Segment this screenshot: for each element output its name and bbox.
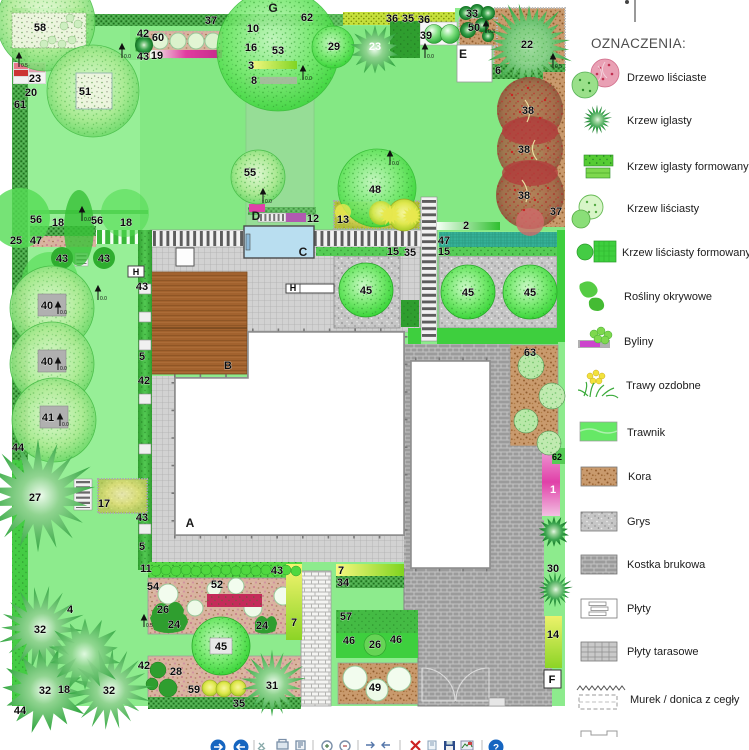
svg-text:4: 4 bbox=[67, 604, 74, 616]
svg-text:25: 25 bbox=[10, 235, 22, 247]
svg-text:Byliny: Byliny bbox=[624, 336, 654, 348]
svg-text:37: 37 bbox=[205, 15, 217, 27]
svg-text:45: 45 bbox=[215, 641, 227, 653]
svg-text:15: 15 bbox=[438, 246, 450, 258]
svg-text:6: 6 bbox=[495, 65, 501, 77]
svg-text:OZNACZENIA:: OZNACZENIA: bbox=[591, 36, 686, 51]
svg-text:E: E bbox=[459, 47, 467, 61]
svg-text:45: 45 bbox=[360, 285, 372, 297]
svg-text:43: 43 bbox=[136, 281, 148, 293]
svg-text:Płyty: Płyty bbox=[627, 603, 651, 615]
svg-text:H: H bbox=[290, 283, 297, 293]
svg-text:47: 47 bbox=[30, 235, 42, 247]
svg-text:40: 40 bbox=[41, 300, 53, 312]
svg-text:22: 22 bbox=[521, 39, 533, 51]
svg-text:1: 1 bbox=[550, 484, 556, 496]
svg-text:Krzew iglasty formowany: Krzew iglasty formowany bbox=[627, 161, 749, 173]
svg-text:G: G bbox=[268, 1, 277, 15]
svg-text:45: 45 bbox=[524, 287, 536, 299]
svg-text:43: 43 bbox=[56, 253, 68, 265]
svg-text:16: 16 bbox=[245, 42, 257, 54]
svg-text:2: 2 bbox=[463, 220, 469, 232]
svg-text:38: 38 bbox=[518, 190, 530, 202]
svg-text:50: 50 bbox=[468, 22, 480, 34]
svg-text:57: 57 bbox=[340, 611, 352, 623]
svg-text:11: 11 bbox=[140, 563, 152, 575]
svg-text:Kostka brukowa: Kostka brukowa bbox=[627, 559, 706, 571]
svg-text:5: 5 bbox=[139, 351, 145, 363]
svg-text:31: 31 bbox=[266, 680, 278, 692]
svg-text:63: 63 bbox=[524, 347, 536, 359]
svg-text:0.0: 0.0 bbox=[392, 161, 399, 167]
svg-text:42: 42 bbox=[137, 28, 149, 40]
svg-text:7: 7 bbox=[291, 617, 297, 629]
svg-text:Trawnik: Trawnik bbox=[627, 427, 666, 439]
svg-text:53: 53 bbox=[272, 45, 284, 57]
svg-text:46: 46 bbox=[343, 635, 355, 647]
svg-text:0.3: 0.3 bbox=[488, 29, 495, 35]
svg-text:45: 45 bbox=[462, 287, 474, 299]
svg-text:40: 40 bbox=[41, 356, 53, 368]
svg-text:48: 48 bbox=[369, 184, 381, 196]
svg-text:Kora: Kora bbox=[628, 471, 652, 483]
svg-text:34: 34 bbox=[337, 577, 350, 589]
svg-text:26: 26 bbox=[369, 639, 381, 651]
svg-text:H: H bbox=[133, 267, 140, 277]
svg-text:62: 62 bbox=[301, 12, 313, 24]
svg-text:42: 42 bbox=[138, 375, 150, 387]
svg-text:28: 28 bbox=[170, 666, 182, 678]
svg-text:Trawy ozdobne: Trawy ozdobne bbox=[626, 380, 701, 392]
svg-text:38: 38 bbox=[522, 105, 534, 117]
svg-text:58: 58 bbox=[34, 22, 46, 34]
svg-text:52: 52 bbox=[211, 579, 223, 591]
svg-text:24: 24 bbox=[168, 619, 181, 631]
svg-text:32: 32 bbox=[39, 685, 51, 697]
svg-text:17: 17 bbox=[98, 498, 110, 510]
svg-text:30: 30 bbox=[547, 563, 559, 575]
svg-text:35: 35 bbox=[233, 698, 245, 710]
svg-text:23: 23 bbox=[29, 73, 41, 85]
svg-text:Murek / donica z cegły: Murek / donica z cegły bbox=[630, 694, 740, 706]
svg-text:7: 7 bbox=[338, 565, 344, 577]
svg-text:32: 32 bbox=[34, 624, 46, 636]
svg-text:56: 56 bbox=[30, 214, 42, 226]
svg-text:24: 24 bbox=[256, 620, 269, 632]
svg-text:0.0: 0.0 bbox=[84, 217, 91, 223]
svg-text:18: 18 bbox=[58, 684, 70, 696]
svg-text:60: 60 bbox=[152, 32, 164, 44]
svg-text:0.0: 0.0 bbox=[124, 54, 131, 60]
svg-text:0.0: 0.0 bbox=[427, 54, 434, 60]
svg-text:Krzew iglasty: Krzew iglasty bbox=[627, 115, 692, 127]
svg-text:Rośliny okrywowe: Rośliny okrywowe bbox=[624, 291, 712, 303]
svg-text:62: 62 bbox=[552, 452, 562, 462]
svg-text:43: 43 bbox=[271, 565, 283, 577]
svg-text:0.5: 0.5 bbox=[21, 63, 28, 69]
svg-text:46: 46 bbox=[390, 634, 402, 646]
svg-text:33: 33 bbox=[466, 8, 478, 20]
svg-text:20: 20 bbox=[25, 87, 37, 99]
svg-text:Grys: Grys bbox=[627, 516, 651, 528]
svg-text:0.5: 0.5 bbox=[146, 623, 153, 629]
svg-text:Krzew liściasty formowany: Krzew liściasty formowany bbox=[622, 247, 749, 259]
svg-text:36: 36 bbox=[386, 13, 398, 25]
svg-text:41: 41 bbox=[42, 412, 54, 424]
svg-text:59: 59 bbox=[188, 684, 200, 696]
svg-text:Płyty tarasowe: Płyty tarasowe bbox=[627, 646, 699, 658]
svg-text:0.0: 0.0 bbox=[62, 422, 69, 428]
svg-text:Krzew liściasty: Krzew liściasty bbox=[627, 203, 700, 215]
svg-text:?: ? bbox=[493, 743, 499, 750]
svg-text:0.0: 0.0 bbox=[60, 366, 67, 372]
svg-text:0.0: 0.0 bbox=[100, 296, 107, 302]
svg-text:43: 43 bbox=[98, 253, 110, 265]
svg-text:18: 18 bbox=[120, 217, 132, 229]
svg-text:44: 44 bbox=[14, 705, 27, 717]
svg-text:32: 32 bbox=[103, 685, 115, 697]
svg-text:C: C bbox=[299, 245, 308, 259]
svg-text:18: 18 bbox=[52, 217, 64, 229]
svg-text:35: 35 bbox=[404, 247, 416, 259]
svg-text:13: 13 bbox=[337, 214, 349, 226]
svg-text:35: 35 bbox=[402, 13, 414, 25]
svg-text:10: 10 bbox=[247, 23, 259, 35]
svg-text:5: 5 bbox=[139, 541, 145, 553]
svg-text:43: 43 bbox=[137, 51, 149, 63]
svg-text:0.0: 0.0 bbox=[265, 199, 272, 205]
svg-text:A: A bbox=[186, 516, 195, 530]
svg-text:0.0: 0.0 bbox=[60, 310, 67, 316]
svg-text:54: 54 bbox=[147, 581, 160, 593]
svg-text:55: 55 bbox=[244, 167, 256, 179]
svg-text:0.0: 0.0 bbox=[305, 76, 312, 82]
svg-text:51: 51 bbox=[79, 86, 91, 98]
svg-text:39: 39 bbox=[420, 30, 432, 42]
svg-text:61: 61 bbox=[14, 99, 26, 111]
svg-text:29: 29 bbox=[328, 41, 340, 53]
svg-text:43: 43 bbox=[136, 512, 148, 524]
svg-text:B: B bbox=[224, 360, 232, 372]
svg-text:44: 44 bbox=[12, 442, 25, 454]
svg-text:27: 27 bbox=[29, 492, 41, 504]
svg-text:Drzewo liściaste: Drzewo liściaste bbox=[627, 72, 706, 84]
svg-text:36: 36 bbox=[418, 14, 430, 26]
svg-text:0.5: 0.5 bbox=[555, 64, 562, 70]
svg-text:19: 19 bbox=[151, 50, 163, 62]
svg-text:D: D bbox=[252, 209, 261, 223]
svg-text:8: 8 bbox=[251, 75, 257, 87]
svg-text:23: 23 bbox=[369, 41, 381, 53]
svg-text:15: 15 bbox=[387, 246, 399, 258]
svg-text:42: 42 bbox=[138, 660, 150, 672]
svg-text:F: F bbox=[549, 674, 556, 686]
svg-text:26: 26 bbox=[157, 604, 169, 616]
svg-text:3: 3 bbox=[248, 60, 254, 72]
svg-text:12: 12 bbox=[307, 213, 319, 225]
svg-text:56: 56 bbox=[91, 215, 103, 227]
svg-text:38: 38 bbox=[518, 144, 530, 156]
svg-text:37: 37 bbox=[550, 206, 562, 218]
svg-text:49: 49 bbox=[369, 682, 381, 694]
svg-text:14: 14 bbox=[547, 629, 560, 641]
